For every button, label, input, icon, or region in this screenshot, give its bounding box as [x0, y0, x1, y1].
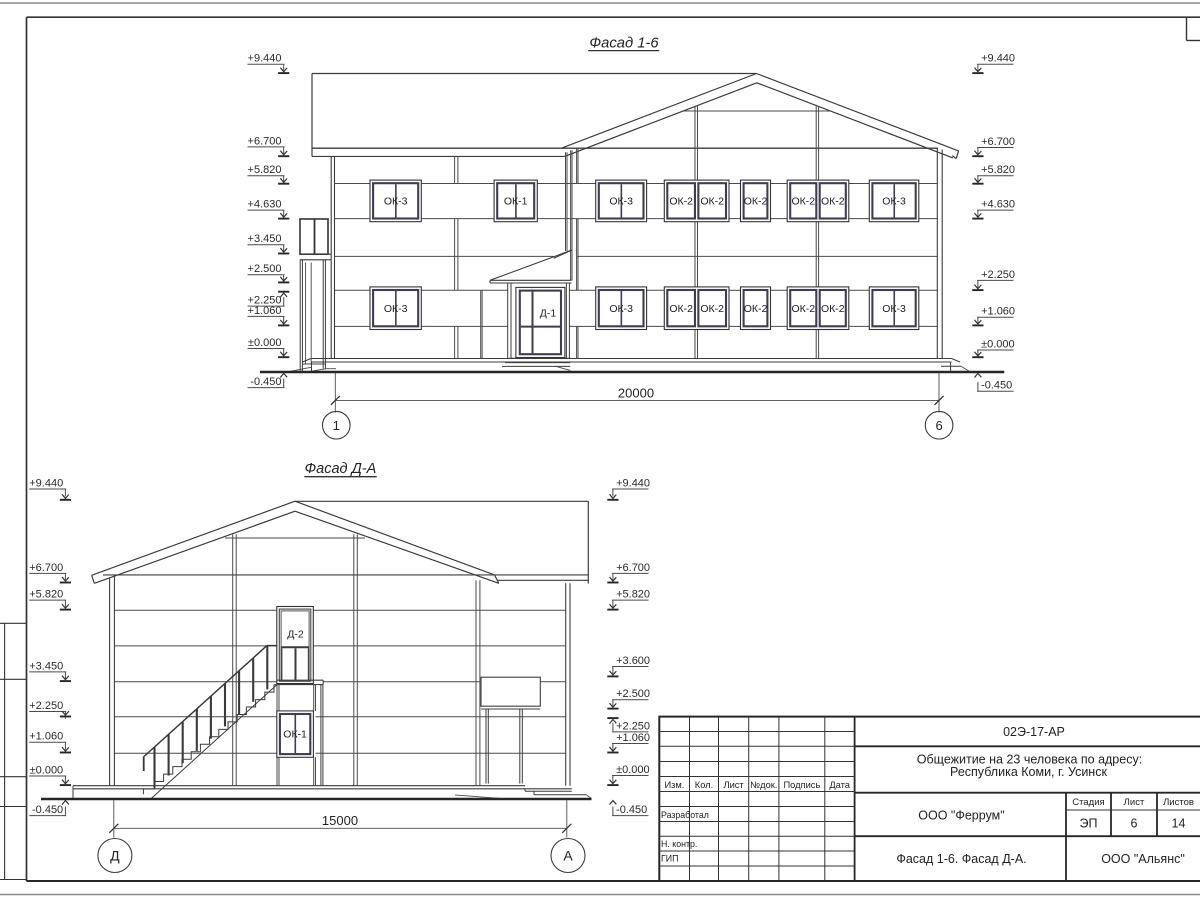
svg-text:ОК-2: ОК-2: [669, 196, 693, 208]
svg-text:15000: 15000: [322, 813, 358, 828]
svg-text:№док.: №док.: [750, 780, 777, 790]
svg-text:ОК-3: ОК-3: [609, 303, 633, 315]
svg-text:+6.700: +6.700: [616, 562, 650, 574]
svg-text:ООО "Альянс": ООО "Альянс": [1101, 852, 1185, 866]
svg-text:±0.000: ±0.000: [981, 338, 1015, 350]
svg-text:Н. контр.: Н. контр.: [661, 839, 697, 849]
svg-text:Лист: Лист: [723, 780, 744, 790]
svg-text:ОК-3: ОК-3: [384, 196, 408, 208]
svg-text:Подпись: Подпись: [784, 780, 821, 790]
svg-text:Лист: Лист: [1124, 797, 1145, 808]
svg-text:-0.450: -0.450: [250, 376, 281, 388]
svg-text:±0.000: ±0.000: [30, 764, 64, 776]
svg-text:ОК-2: ОК-2: [791, 303, 815, 315]
svg-text:6: 6: [935, 418, 942, 433]
svg-text:+2.250: +2.250: [616, 720, 650, 732]
svg-text:+3.600: +3.600: [616, 655, 650, 667]
svg-text:20000: 20000: [618, 385, 654, 400]
svg-text:ЭП: ЭП: [1080, 817, 1098, 831]
svg-text:+6.700: +6.700: [981, 136, 1015, 148]
svg-text:02Э-17-АР: 02Э-17-АР: [1003, 725, 1065, 739]
svg-text:Д-1: Д-1: [540, 308, 557, 320]
svg-text:Д: Д: [110, 848, 120, 864]
svg-text:ОК-3: ОК-3: [882, 196, 906, 208]
svg-text:+9.440: +9.440: [981, 53, 1015, 65]
svg-text:+1.060: +1.060: [981, 306, 1015, 318]
svg-text:Кол.: Кол.: [695, 780, 713, 790]
svg-text:+9.440: +9.440: [248, 53, 282, 65]
svg-text:+9.440: +9.440: [616, 477, 650, 489]
svg-text:Листов: Листов: [1163, 797, 1194, 808]
svg-text:Изм.: Изм.: [664, 780, 684, 790]
svg-text:Фасад 1-6. Фасад Д-А.: Фасад 1-6. Фасад Д-А.: [896, 852, 1026, 866]
svg-text:+5.820: +5.820: [616, 589, 650, 601]
svg-text:+6.700: +6.700: [29, 562, 63, 574]
svg-text:+2.250: +2.250: [29, 700, 63, 712]
svg-text:ОК-3: ОК-3: [882, 303, 906, 315]
svg-text:Д-2: Д-2: [287, 629, 304, 641]
svg-text:+9.440: +9.440: [29, 477, 63, 489]
svg-text:+3.450: +3.450: [248, 233, 282, 245]
svg-text:+1.060: +1.060: [616, 732, 650, 744]
svg-text:+5.820: +5.820: [29, 589, 63, 601]
svg-text:ООО "Феррум": ООО "Феррум": [918, 809, 1004, 823]
svg-text:6: 6: [1131, 817, 1138, 831]
svg-text:14: 14: [1172, 817, 1186, 831]
svg-text:ОК-2: ОК-2: [669, 303, 693, 315]
svg-text:ОК-1: ОК-1: [283, 729, 307, 741]
svg-text:ОК-3: ОК-3: [609, 196, 633, 208]
svg-text:ОК-1: ОК-1: [504, 196, 528, 208]
svg-text:-0.450: -0.450: [981, 380, 1012, 392]
svg-text:+6.700: +6.700: [248, 135, 282, 147]
svg-text:Разработал: Разработал: [661, 810, 709, 820]
svg-text:+5.820: +5.820: [248, 164, 282, 176]
svg-text:+3.450: +3.450: [29, 660, 63, 672]
svg-text:ОК-3: ОК-3: [384, 303, 408, 315]
svg-text:ГИП: ГИП: [661, 854, 678, 864]
svg-text:+2.250: +2.250: [981, 269, 1015, 281]
svg-text:+2.500: +2.500: [616, 688, 650, 700]
svg-text:ОК-2: ОК-2: [791, 196, 815, 208]
svg-text:±0.000: ±0.000: [616, 764, 650, 776]
svg-text:+1.060: +1.060: [248, 305, 282, 317]
svg-text:Фасад 1-6: Фасад 1-6: [589, 36, 659, 52]
svg-text:Республика Коми, г. Усинск: Республика Коми, г. Усинск: [950, 765, 1107, 779]
svg-text:Фасад Д-А: Фасад Д-А: [305, 461, 377, 477]
svg-text:ОК-2: ОК-2: [821, 196, 845, 208]
svg-text:Дата: Дата: [829, 780, 850, 790]
svg-text:ОК-2: ОК-2: [700, 303, 724, 315]
svg-text:ОК-2: ОК-2: [744, 303, 768, 315]
svg-text:ОК-2: ОК-2: [700, 196, 724, 208]
svg-text:-0.450: -0.450: [616, 804, 647, 816]
svg-text:+5.820: +5.820: [981, 164, 1015, 176]
svg-text:±0.000: ±0.000: [248, 337, 282, 349]
svg-text:1: 1: [333, 418, 340, 433]
svg-text:А: А: [563, 848, 573, 864]
svg-text:+1.060: +1.060: [29, 731, 63, 743]
svg-text:+2.500: +2.500: [248, 263, 282, 275]
svg-text:+4.630: +4.630: [248, 199, 282, 211]
svg-text:Стадия: Стадия: [1072, 797, 1104, 808]
svg-text:-0.450: -0.450: [32, 804, 63, 816]
svg-text:+4.630: +4.630: [981, 199, 1015, 211]
svg-text:ОК-2: ОК-2: [821, 303, 845, 315]
svg-text:ОК-2: ОК-2: [744, 196, 768, 208]
